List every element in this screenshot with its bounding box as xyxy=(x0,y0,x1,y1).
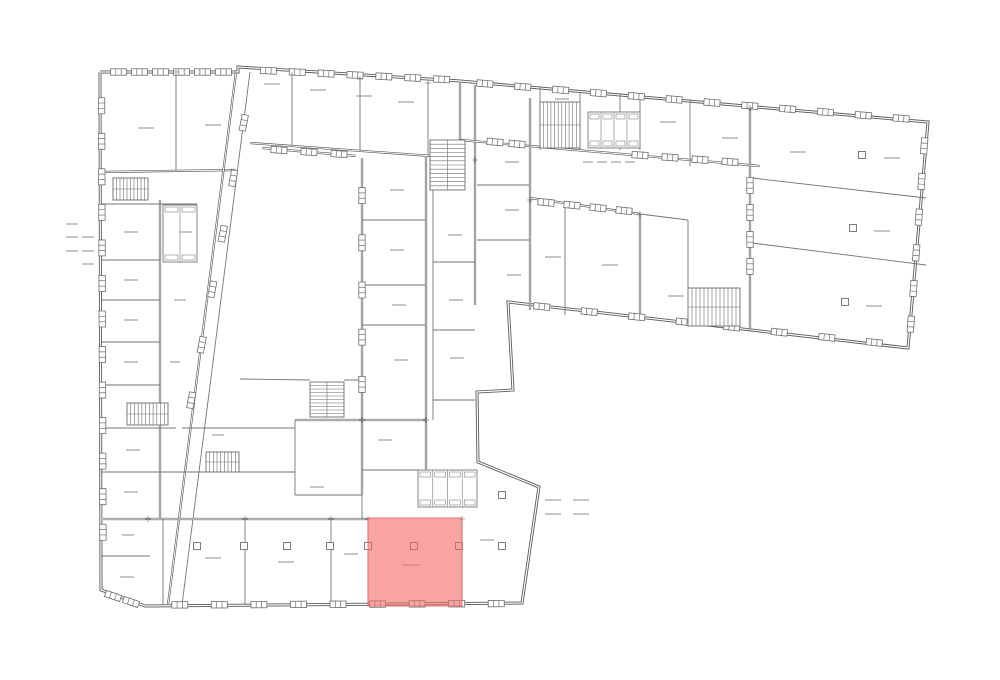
window-icon xyxy=(216,69,232,75)
staircase-icon xyxy=(688,288,740,326)
window-icon xyxy=(99,382,105,398)
window-icon xyxy=(552,86,568,94)
window-icon xyxy=(153,69,169,75)
column-mark xyxy=(194,543,201,550)
staircase-icon xyxy=(127,403,168,425)
window-icon xyxy=(99,204,105,220)
window-icon xyxy=(187,392,196,409)
window-icon xyxy=(405,74,421,81)
wall-line xyxy=(240,379,310,380)
wc-block xyxy=(588,112,640,148)
window-icon xyxy=(99,311,105,327)
wall-line xyxy=(640,214,688,220)
column-mark xyxy=(859,152,866,159)
window-icon xyxy=(104,590,121,601)
window-icon xyxy=(866,338,883,346)
window-icon xyxy=(359,188,365,204)
dimension-tick xyxy=(145,516,151,522)
window-icon xyxy=(907,316,915,332)
outer-walls-layer xyxy=(100,67,928,606)
column-mark xyxy=(284,543,291,550)
window-icon xyxy=(172,602,188,608)
window-icon xyxy=(100,524,106,540)
dimension-tick xyxy=(637,211,643,217)
window-icon xyxy=(487,138,504,146)
window-icon xyxy=(347,71,363,78)
floorplan-page xyxy=(0,0,1000,680)
window-icon xyxy=(632,151,648,159)
dimension-tick xyxy=(242,516,248,522)
column-mark xyxy=(327,543,334,550)
dimension-tick xyxy=(472,157,478,163)
window-icon xyxy=(132,69,148,75)
window-icon xyxy=(98,133,104,149)
window-icon xyxy=(915,209,923,225)
window-icon xyxy=(331,150,347,157)
window-icon xyxy=(515,83,531,91)
window-icon xyxy=(122,596,139,607)
window-icon xyxy=(197,336,206,353)
column-mark xyxy=(499,543,506,550)
window-icon xyxy=(99,275,105,291)
window-icon xyxy=(564,201,581,209)
window-icon xyxy=(893,115,909,123)
window-icon xyxy=(359,282,365,298)
window-icon xyxy=(99,240,105,256)
window-icon xyxy=(817,108,833,116)
staircase-icon xyxy=(310,382,344,417)
window-icon xyxy=(747,232,753,248)
window-icon xyxy=(301,148,317,155)
window-icon xyxy=(359,329,365,345)
window-icon xyxy=(111,69,127,75)
window-icon xyxy=(779,105,795,113)
window-icon xyxy=(98,98,104,114)
window-icon xyxy=(855,111,871,119)
building-outline-inner xyxy=(100,67,928,606)
window-icon xyxy=(581,308,598,316)
window-icon xyxy=(359,376,365,392)
dimension-tick xyxy=(425,80,431,86)
window-icon xyxy=(376,73,392,80)
window-icon xyxy=(818,333,835,341)
window-icon xyxy=(99,418,105,434)
dimension-tick xyxy=(359,417,365,423)
window-icon xyxy=(747,205,753,221)
column-mark xyxy=(241,543,248,550)
wall-line xyxy=(182,72,250,605)
window-icon xyxy=(211,602,227,608)
window-icon xyxy=(747,259,753,275)
dimension-tick xyxy=(328,516,334,522)
wall-line xyxy=(752,243,926,265)
window-icon xyxy=(260,67,276,74)
window-icon xyxy=(628,92,644,100)
highlighted-room[interactable] xyxy=(368,518,462,606)
window-icon xyxy=(771,328,788,336)
window-icon xyxy=(509,140,526,148)
window-icon xyxy=(538,198,555,206)
window-icon xyxy=(722,158,738,166)
window-icon xyxy=(477,80,493,88)
window-icon xyxy=(910,280,918,296)
window-icon xyxy=(590,204,607,212)
staircase-icon xyxy=(113,178,148,200)
staircase-icon xyxy=(540,102,580,148)
column-mark xyxy=(850,225,857,232)
window-icon xyxy=(99,453,105,469)
window-icon xyxy=(330,601,346,607)
window-icon xyxy=(359,235,365,251)
window-icon xyxy=(251,601,267,607)
staircase-icon xyxy=(430,140,465,190)
window-icon xyxy=(920,138,928,154)
windows-layer xyxy=(98,67,928,608)
window-icon xyxy=(290,601,306,607)
column-mark xyxy=(499,492,506,499)
window-icon xyxy=(590,89,606,97)
window-icon xyxy=(318,70,334,77)
window-icon xyxy=(666,96,682,104)
window-icon xyxy=(229,170,238,187)
window-icon xyxy=(662,154,678,162)
window-icon xyxy=(271,146,287,153)
staircase-icon xyxy=(206,452,239,472)
window-icon xyxy=(99,169,105,185)
window-icon xyxy=(628,313,645,321)
window-icon xyxy=(488,600,504,606)
window-icon xyxy=(918,173,926,189)
window-icon xyxy=(912,245,920,261)
window-icon xyxy=(239,114,248,131)
window-icon xyxy=(218,225,227,242)
window-icon xyxy=(195,69,211,75)
window-icon xyxy=(616,207,633,215)
dimension-tick xyxy=(423,417,429,423)
floorplan-svg xyxy=(0,0,1000,680)
window-icon xyxy=(704,99,720,107)
window-icon xyxy=(433,76,449,83)
wc-block xyxy=(418,470,477,507)
window-icon xyxy=(99,347,105,363)
window-icon xyxy=(747,178,753,194)
column-mark xyxy=(842,299,849,306)
wall-line xyxy=(752,178,926,198)
window-icon xyxy=(100,489,106,505)
wc-block xyxy=(163,205,197,262)
window-icon xyxy=(692,156,708,164)
window-icon xyxy=(533,303,550,311)
